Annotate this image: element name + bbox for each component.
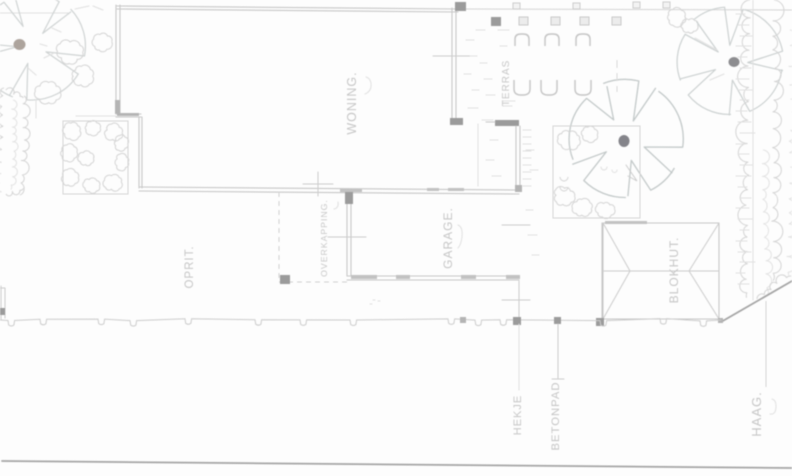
svg-text:GARAGE.: GARAGE. <box>441 207 455 269</box>
svg-text:OVERKAPPING.: OVERKAPPING. <box>319 199 329 277</box>
svg-text:HEKJE: HEKJE <box>512 395 524 435</box>
svg-text:TERRAS: TERRAS <box>501 60 512 107</box>
svg-text:BLOKHUT.: BLOKHUT. <box>667 237 681 304</box>
svg-text:OPRIT.: OPRIT. <box>184 245 196 288</box>
svg-text:WONING.: WONING. <box>345 71 359 134</box>
svg-text:BETONPAD: BETONPAD <box>550 381 562 450</box>
svg-text:HAAG.: HAAG. <box>749 391 764 436</box>
